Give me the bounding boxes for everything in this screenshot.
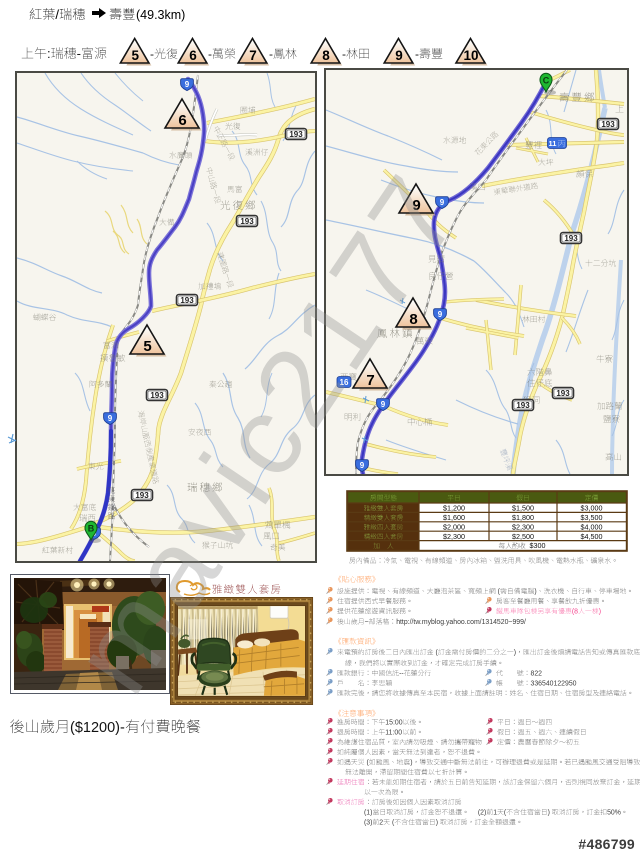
svg-text:~: ~	[365, 619, 369, 626]
svg-text:): )	[534, 589, 536, 596]
svg-text:(49.3km): (49.3km)	[136, 8, 185, 22]
svg-text:/: /	[55, 7, 59, 22]
svg-text:#486799: #486799	[578, 836, 635, 852]
svg-text:$1,500: $1,500	[512, 504, 534, 513]
svg-text:7: 7	[249, 48, 257, 63]
svg-text::: :	[47, 46, 51, 61]
svg-text:9: 9	[438, 310, 443, 319]
svg-text:--: --	[399, 671, 404, 678]
svg-text:-: -	[342, 47, 346, 61]
svg-text:$1,600: $1,600	[443, 513, 465, 522]
svg-text:-: -	[208, 47, 212, 61]
svg-text:193: 193	[564, 234, 578, 243]
svg-text:193: 193	[601, 120, 615, 129]
svg-text:$1,200: $1,200	[443, 504, 465, 513]
svg-text:5: 5	[143, 338, 151, 355]
svg-text:-: -	[415, 47, 419, 61]
svg-text:336540122950: 336540122950	[531, 681, 577, 688]
svg-text:10: 10	[463, 48, 478, 63]
svg-text:$2,300: $2,300	[443, 532, 465, 541]
svg-text:822: 822	[531, 671, 543, 678]
svg-text:http://tw.myblog.yahoo.com/131: http://tw.myblog.yahoo.com/1314520~999/	[396, 619, 526, 626]
svg-text:): )	[410, 760, 412, 767]
svg-text:$3,500: $3,500	[581, 513, 603, 522]
svg-text:193: 193	[240, 217, 254, 226]
svg-text:C: C	[543, 75, 550, 85]
svg-text:B: B	[88, 523, 95, 533]
svg-text:-: -	[150, 47, 154, 61]
svg-text:-: -	[269, 47, 273, 61]
svg-text:$4,000: $4,000	[581, 522, 603, 531]
svg-text:($1200)-: ($1200)-	[70, 720, 125, 736]
svg-text:-: -	[77, 46, 81, 61]
svg-text:(1): (1)	[364, 810, 372, 817]
svg-text:$3,000: $3,000	[581, 504, 603, 513]
svg-text:(8: (8	[572, 609, 578, 616]
svg-text:50%: 50%	[607, 810, 621, 817]
svg-text:5: 5	[131, 48, 139, 63]
svg-text:$300: $300	[530, 541, 546, 550]
svg-text:193: 193	[556, 389, 570, 398]
svg-text:9: 9	[360, 461, 365, 470]
svg-text:): )	[599, 609, 601, 616]
svg-text:6: 6	[189, 48, 197, 63]
svg-text:$4,500: $4,500	[581, 532, 603, 541]
svg-text:11:00: 11:00	[385, 730, 402, 737]
svg-text:11: 11	[549, 139, 557, 148]
svg-text:9: 9	[108, 414, 113, 423]
svg-text:15:00: 15:00	[385, 720, 402, 727]
svg-text:$2,000: $2,000	[443, 522, 465, 531]
svg-text:193: 193	[150, 391, 164, 400]
svg-text:9: 9	[395, 48, 403, 63]
svg-text:9: 9	[381, 400, 386, 409]
svg-text:(3): (3)	[364, 820, 372, 827]
svg-text:6: 6	[178, 112, 186, 129]
svg-text:): )	[514, 650, 516, 657]
svg-text:$1,800: $1,800	[512, 513, 534, 522]
svg-text:): )	[548, 810, 550, 817]
svg-text:193: 193	[516, 401, 530, 410]
svg-text:9: 9	[185, 80, 190, 89]
svg-text:8: 8	[322, 48, 330, 63]
svg-text:): )	[436, 820, 438, 827]
svg-text:193: 193	[180, 296, 194, 305]
svg-text:193: 193	[289, 130, 303, 139]
svg-text:1: 1	[493, 810, 497, 817]
svg-text:2: 2	[379, 820, 383, 827]
svg-text:$2,300: $2,300	[512, 522, 534, 531]
svg-text:$2,500: $2,500	[512, 532, 534, 541]
svg-text:(2): (2)	[478, 810, 486, 817]
